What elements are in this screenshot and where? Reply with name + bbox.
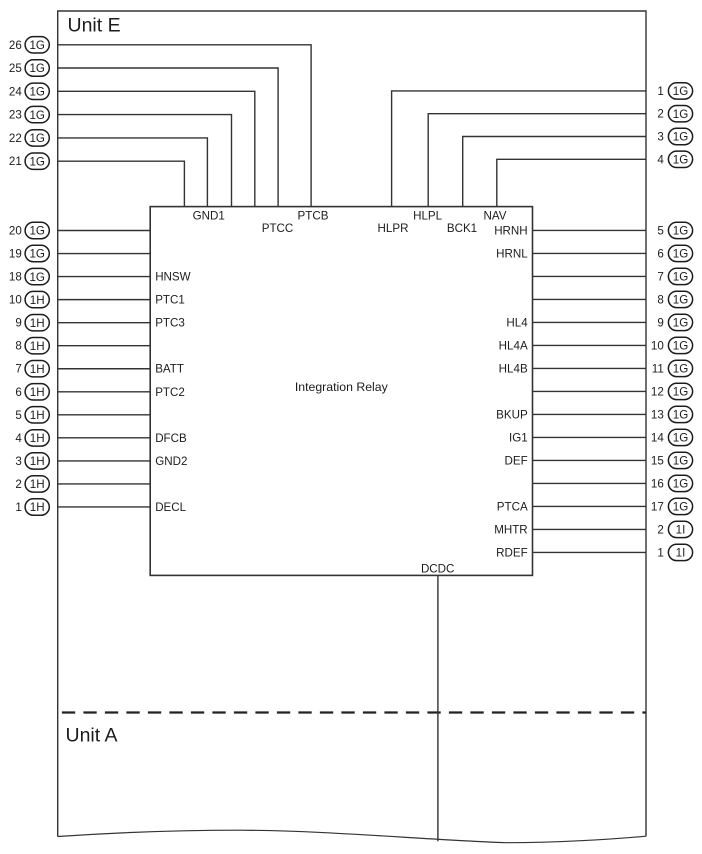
svg-text:1G: 1G bbox=[673, 455, 688, 468]
svg-text:IG1: IG1 bbox=[509, 431, 528, 444]
svg-text:MHTR: MHTR bbox=[494, 523, 528, 536]
svg-text:13: 13 bbox=[651, 408, 664, 421]
svg-text:Unit E: Unit E bbox=[68, 15, 121, 37]
svg-text:1G: 1G bbox=[673, 432, 688, 445]
svg-text:25: 25 bbox=[9, 62, 22, 75]
svg-text:1G: 1G bbox=[673, 85, 688, 98]
svg-text:1G: 1G bbox=[29, 225, 44, 238]
svg-text:NAV: NAV bbox=[484, 210, 507, 223]
svg-text:24: 24 bbox=[9, 85, 22, 98]
svg-text:1H: 1H bbox=[30, 363, 45, 376]
svg-text:6: 6 bbox=[657, 247, 663, 260]
svg-text:1G: 1G bbox=[29, 62, 44, 75]
svg-text:2: 2 bbox=[657, 523, 663, 536]
svg-text:1G: 1G bbox=[673, 363, 688, 376]
svg-text:1G: 1G bbox=[673, 478, 688, 491]
svg-text:23: 23 bbox=[9, 109, 22, 122]
svg-text:HL4A: HL4A bbox=[499, 339, 528, 352]
svg-text:8: 8 bbox=[15, 340, 21, 353]
svg-text:1: 1 bbox=[657, 85, 663, 98]
svg-text:1G: 1G bbox=[673, 131, 688, 144]
svg-text:DEF: DEF bbox=[505, 454, 528, 467]
svg-text:1G: 1G bbox=[673, 248, 688, 261]
svg-text:5: 5 bbox=[15, 409, 21, 422]
svg-text:3: 3 bbox=[15, 455, 21, 468]
svg-text:20: 20 bbox=[9, 225, 22, 238]
svg-text:RDEF: RDEF bbox=[496, 546, 528, 559]
svg-text:1G: 1G bbox=[673, 108, 688, 121]
svg-text:11: 11 bbox=[652, 362, 664, 375]
svg-text:1G: 1G bbox=[673, 501, 688, 514]
svg-text:21: 21 bbox=[9, 155, 22, 168]
svg-text:1G: 1G bbox=[29, 39, 44, 52]
svg-text:1G: 1G bbox=[673, 294, 688, 307]
svg-text:HL4: HL4 bbox=[506, 316, 528, 329]
svg-text:HLPL: HLPL bbox=[413, 210, 443, 223]
svg-text:HL4B: HL4B bbox=[499, 362, 528, 375]
svg-text:DFCB: DFCB bbox=[155, 432, 187, 445]
svg-text:PTC3: PTC3 bbox=[155, 317, 185, 330]
svg-text:2: 2 bbox=[15, 478, 21, 491]
svg-text:1G: 1G bbox=[673, 225, 688, 238]
svg-text:5: 5 bbox=[657, 224, 663, 237]
svg-text:PTC1: PTC1 bbox=[155, 294, 185, 307]
svg-text:1G: 1G bbox=[673, 154, 688, 167]
svg-text:7: 7 bbox=[15, 363, 21, 376]
svg-text:1H: 1H bbox=[30, 294, 45, 307]
svg-text:1H: 1H bbox=[30, 409, 45, 422]
svg-text:1H: 1H bbox=[30, 478, 45, 491]
svg-text:HRNL: HRNL bbox=[496, 247, 528, 260]
svg-text:12: 12 bbox=[651, 385, 664, 398]
svg-text:3: 3 bbox=[657, 131, 663, 144]
svg-text:GND2: GND2 bbox=[155, 455, 187, 468]
svg-text:1H: 1H bbox=[30, 501, 45, 514]
svg-text:GND1: GND1 bbox=[193, 210, 225, 223]
svg-text:9: 9 bbox=[15, 317, 21, 330]
svg-text:Unit A: Unit A bbox=[66, 725, 118, 747]
svg-text:PTCC: PTCC bbox=[262, 222, 294, 235]
svg-text:1H: 1H bbox=[30, 340, 45, 353]
svg-text:1: 1 bbox=[657, 546, 663, 559]
svg-text:1I: 1I bbox=[676, 547, 686, 560]
svg-text:Integration Relay: Integration Relay bbox=[295, 380, 389, 394]
svg-text:1G: 1G bbox=[29, 155, 44, 168]
svg-text:1I: 1I bbox=[676, 524, 686, 537]
svg-text:1G: 1G bbox=[29, 248, 44, 261]
svg-text:16: 16 bbox=[651, 477, 664, 490]
svg-text:PTC2: PTC2 bbox=[155, 386, 185, 399]
svg-text:1G: 1G bbox=[29, 109, 44, 122]
svg-text:1G: 1G bbox=[29, 86, 44, 99]
svg-text:1G: 1G bbox=[673, 409, 688, 422]
svg-text:1H: 1H bbox=[30, 455, 45, 468]
svg-text:14: 14 bbox=[651, 431, 664, 444]
svg-text:2: 2 bbox=[657, 108, 663, 121]
svg-text:6: 6 bbox=[15, 386, 21, 399]
svg-text:1G: 1G bbox=[29, 132, 44, 145]
svg-text:DCDC: DCDC bbox=[421, 563, 455, 576]
svg-text:HRNH: HRNH bbox=[494, 224, 528, 237]
svg-text:1G: 1G bbox=[673, 317, 688, 330]
svg-text:PTCB: PTCB bbox=[298, 210, 329, 223]
svg-text:1H: 1H bbox=[30, 432, 45, 445]
svg-text:BKUP: BKUP bbox=[496, 408, 528, 421]
svg-text:PTCA: PTCA bbox=[497, 500, 528, 513]
svg-text:8: 8 bbox=[657, 293, 663, 306]
svg-text:1H: 1H bbox=[30, 317, 45, 330]
svg-text:1G: 1G bbox=[673, 271, 688, 284]
svg-text:1: 1 bbox=[15, 501, 21, 514]
svg-text:19: 19 bbox=[9, 248, 22, 261]
svg-text:9: 9 bbox=[657, 316, 663, 329]
svg-text:1G: 1G bbox=[29, 271, 44, 284]
svg-text:DECL: DECL bbox=[155, 501, 186, 514]
svg-text:1H: 1H bbox=[30, 386, 45, 399]
svg-text:BATT: BATT bbox=[155, 363, 184, 376]
svg-text:1G: 1G bbox=[673, 386, 688, 399]
svg-text:BCK1: BCK1 bbox=[447, 222, 477, 235]
svg-text:15: 15 bbox=[651, 454, 664, 467]
svg-text:17: 17 bbox=[651, 500, 664, 513]
svg-text:10: 10 bbox=[9, 294, 22, 307]
svg-text:10: 10 bbox=[651, 339, 664, 352]
svg-text:18: 18 bbox=[9, 271, 22, 284]
svg-text:4: 4 bbox=[657, 153, 664, 166]
svg-text:26: 26 bbox=[9, 39, 22, 52]
svg-text:1G: 1G bbox=[673, 340, 688, 353]
svg-text:HNSW: HNSW bbox=[155, 271, 190, 284]
svg-text:HLPR: HLPR bbox=[378, 222, 409, 235]
svg-text:7: 7 bbox=[657, 270, 663, 283]
svg-text:4: 4 bbox=[15, 432, 22, 445]
svg-text:22: 22 bbox=[9, 132, 22, 145]
